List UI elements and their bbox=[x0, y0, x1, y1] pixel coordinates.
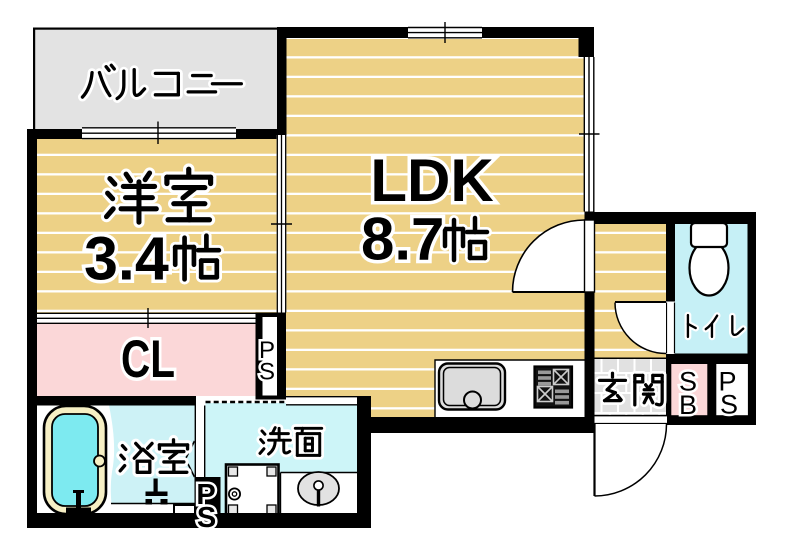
svg-text:S: S bbox=[259, 359, 275, 386]
svg-text:S: S bbox=[720, 389, 738, 419]
svg-text:LDK: LDK bbox=[370, 147, 493, 214]
svg-text:3.4: 3.4 bbox=[84, 225, 169, 293]
svg-text:8.7: 8.7 bbox=[361, 206, 444, 273]
svg-text:B: B bbox=[679, 390, 697, 420]
svg-text:S: S bbox=[197, 502, 216, 534]
svg-text:CL: CL bbox=[121, 330, 175, 389]
